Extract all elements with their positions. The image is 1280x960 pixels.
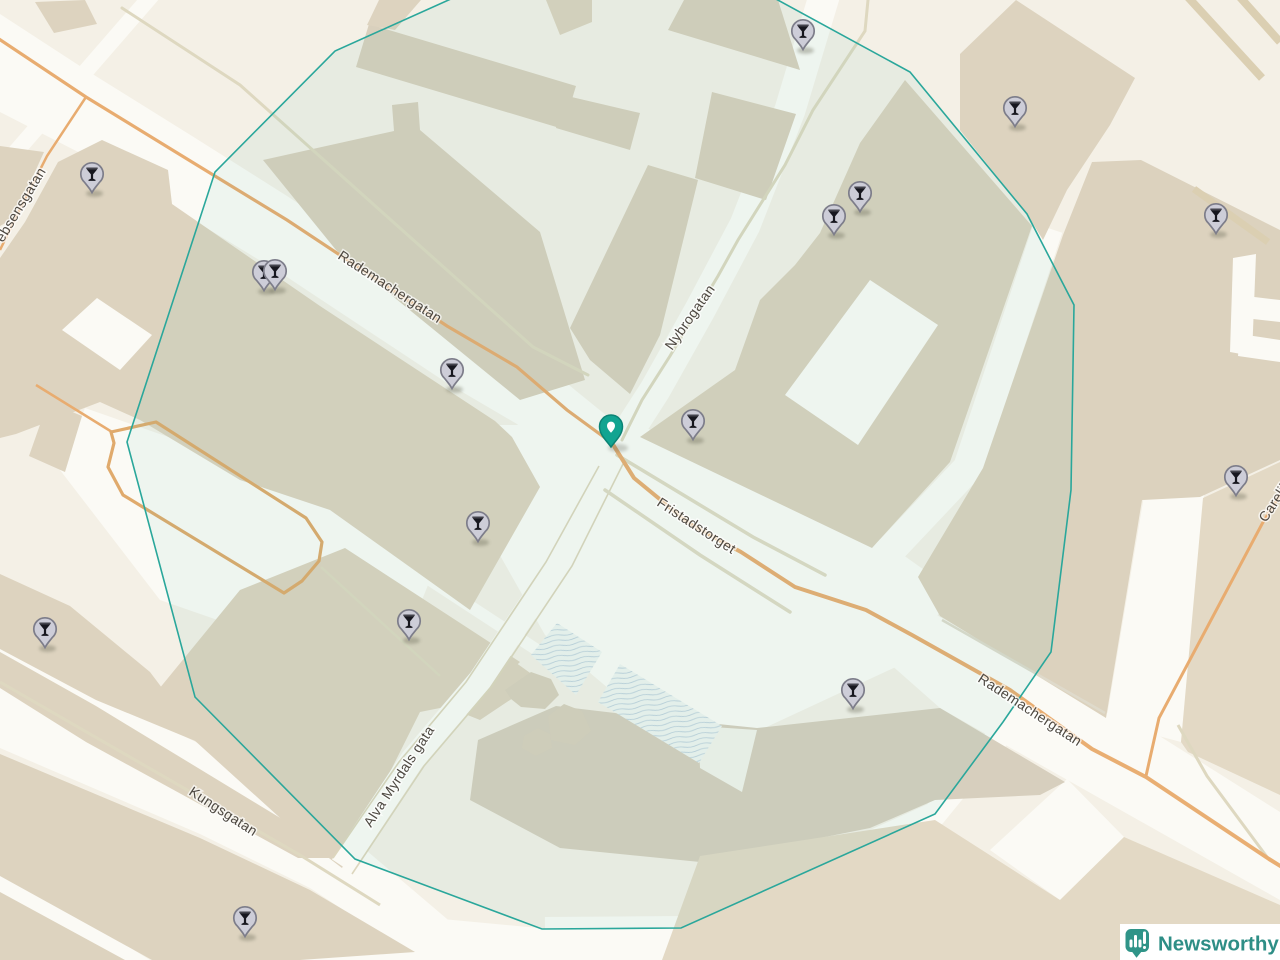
svg-text:Newsworthy: Newsworthy xyxy=(1158,933,1279,956)
